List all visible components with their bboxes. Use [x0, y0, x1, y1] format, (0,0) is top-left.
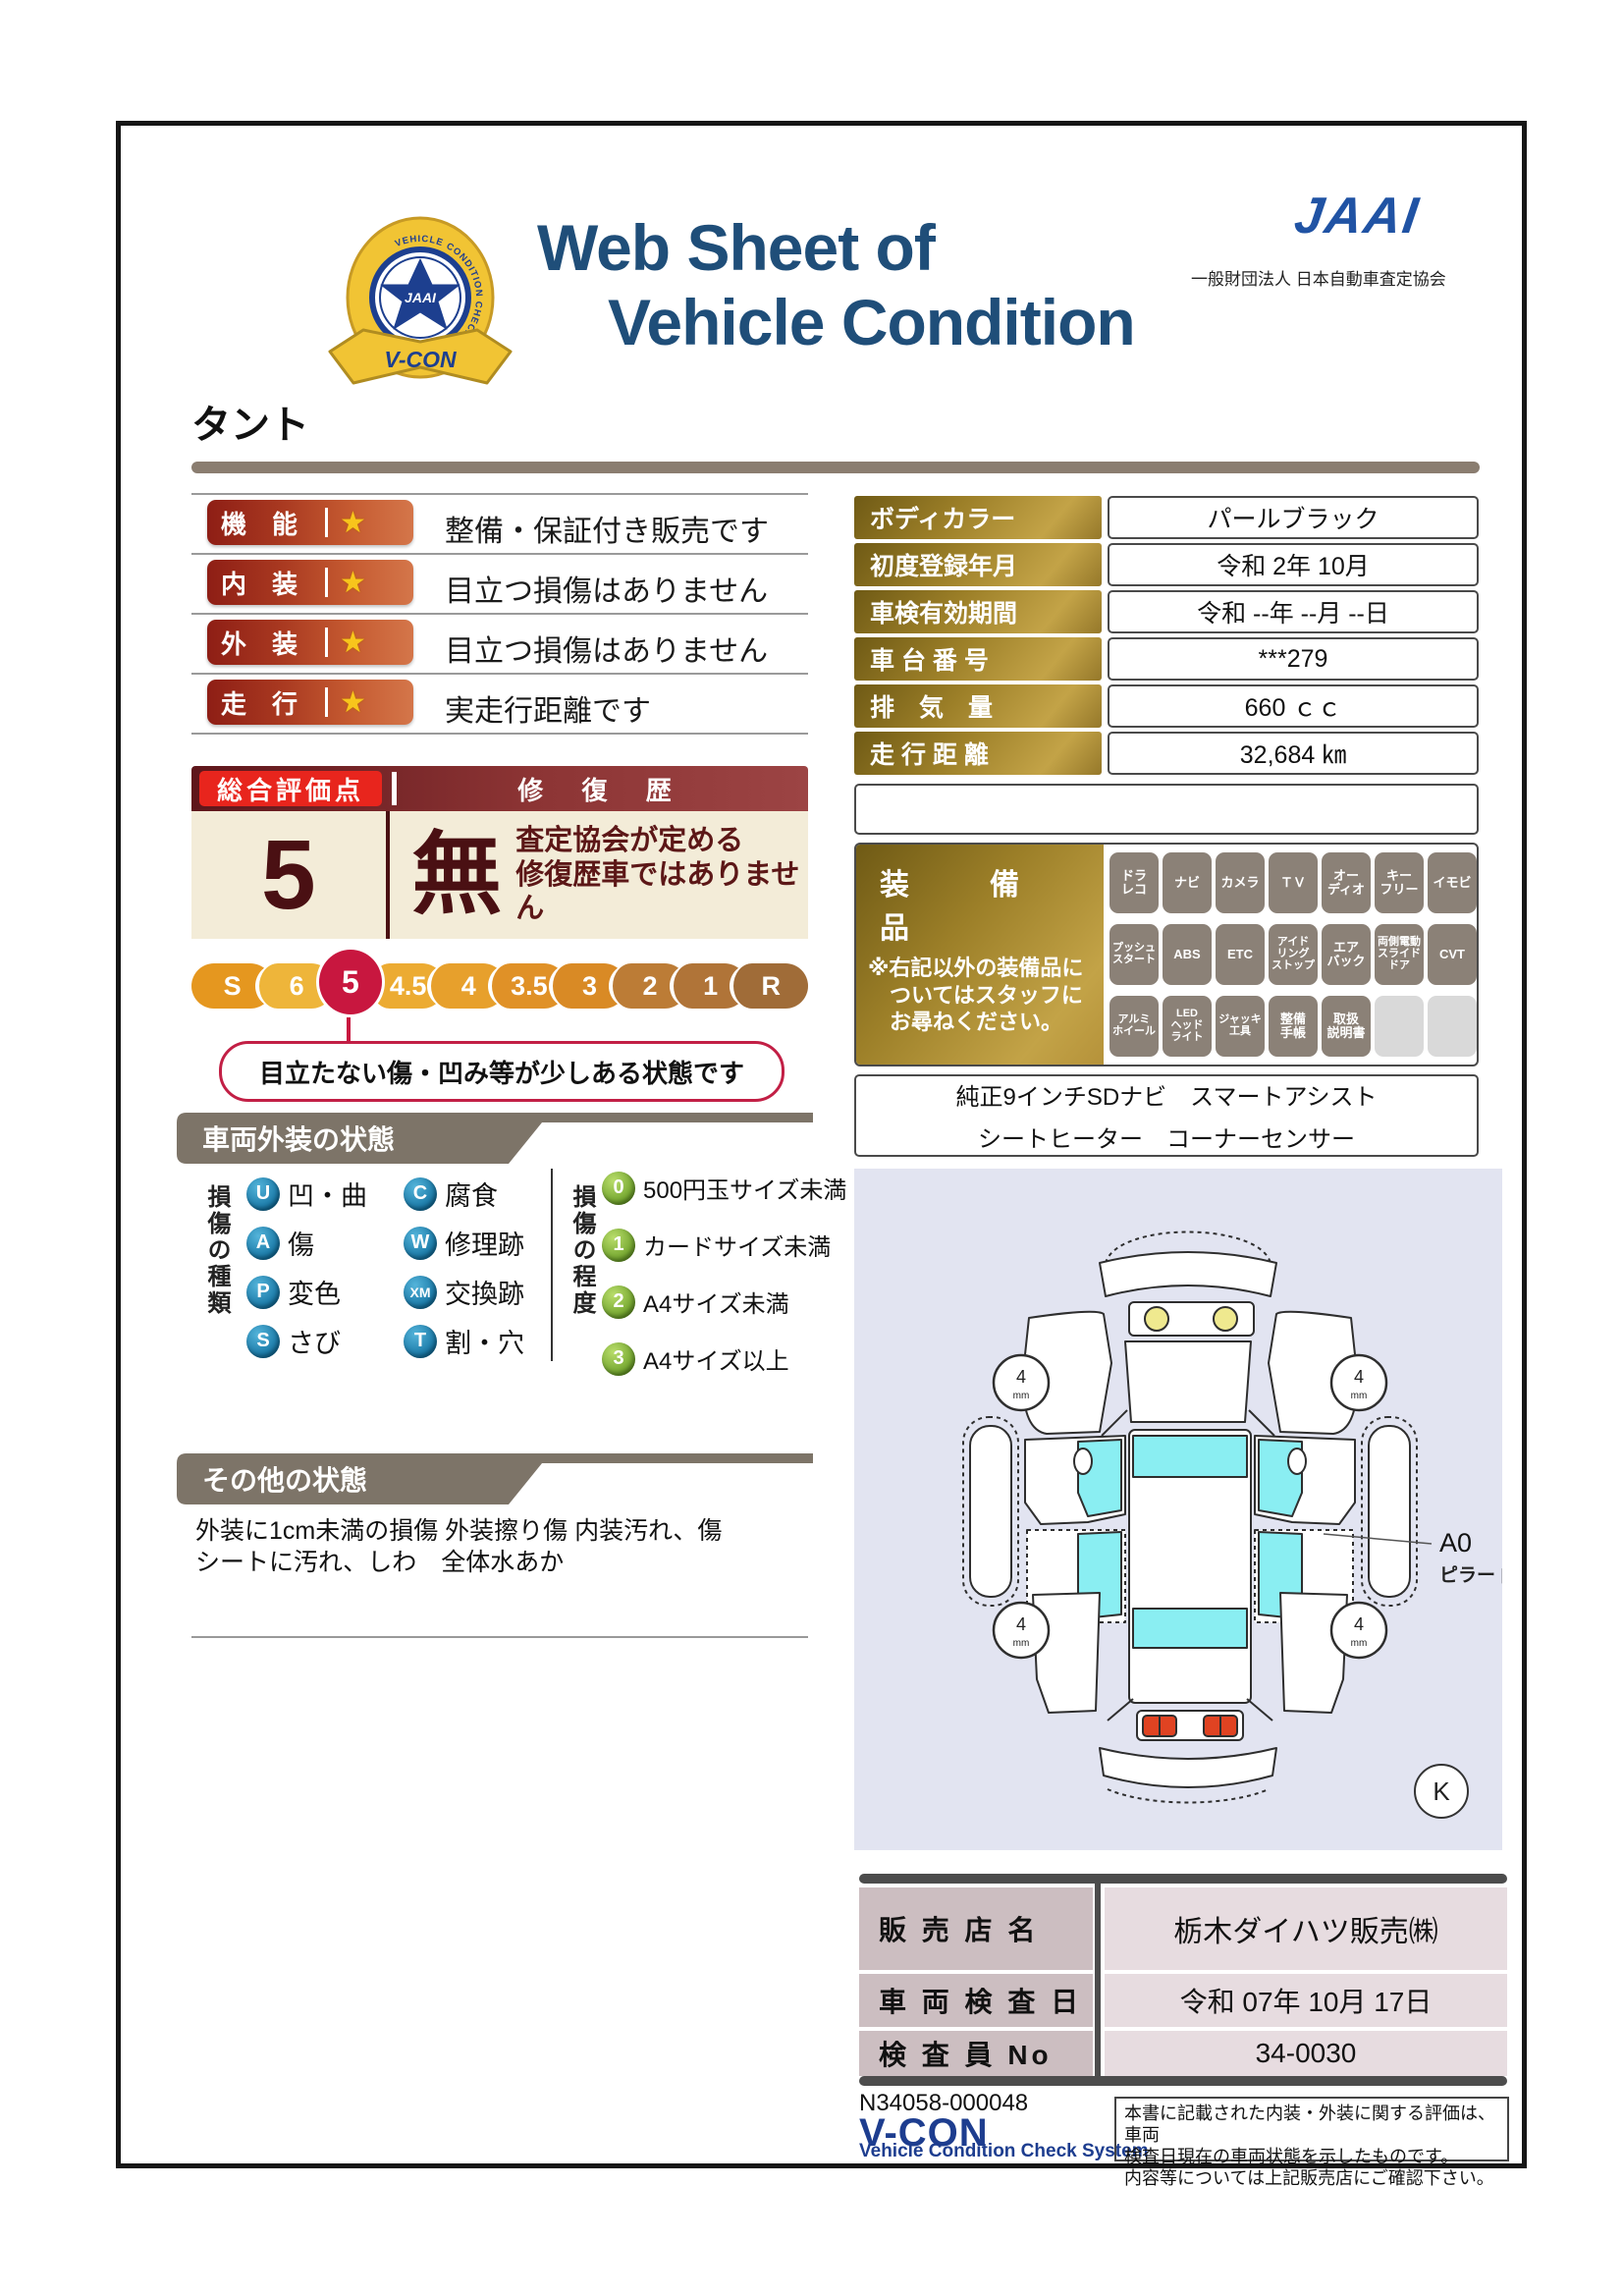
equip-badge-alloy-wheels: アルミ ホイール — [1109, 996, 1159, 1057]
equip-badge-empty — [1375, 996, 1424, 1057]
vcon-emblem-icon: VEHICLE CONDITION CHECK SYSTEM JAAI V-CO… — [322, 214, 518, 401]
damage-degree-item: 3 A4サイズ以上 — [602, 1341, 789, 1376]
rating-separator — [191, 733, 808, 735]
disclaimer-line2: 検査日現在の車両状態を示したものです。 — [1124, 2147, 1499, 2168]
tread-unit: mm — [1013, 1638, 1030, 1649]
dealer-label-inspection-date: 車 両 検 査 日 — [859, 1974, 1093, 2027]
vcon-logo-subtitle: Vehicle Condition Check System — [859, 2141, 1149, 2162]
rating-separator — [191, 613, 808, 615]
table-vertical-divider — [1095, 1884, 1101, 2076]
overall-score-value: 5 — [191, 811, 386, 939]
equip-badge-owners-manual: 取扱 説明書 — [1322, 996, 1371, 1057]
equip-badge-cvt: CVT — [1428, 924, 1477, 985]
other-banner-title: その他の状態 — [202, 1464, 367, 1496]
pill-divider — [325, 687, 328, 717]
damage-type-item: W 修理跡 — [404, 1224, 524, 1262]
table-top-bar — [859, 1874, 1507, 1884]
dealer-label-inspector-no: 検 査 員 No — [859, 2031, 1093, 2076]
tread-unit: mm — [1351, 1638, 1368, 1649]
degree-text: カードサイズ未満 — [643, 1228, 831, 1262]
damage-type-text: 凹・曲 — [288, 1175, 367, 1213]
rating-label: 外 装 — [221, 625, 315, 661]
rating-separator — [191, 673, 808, 675]
table-bottom-bar — [859, 2076, 1507, 2086]
dealer-table: 販 売 店 名 栃木ダイハツ販売㈱ 車 両 検 査 日 令和 07年 10月 1… — [859, 1874, 1507, 2086]
page-frame: VEHICLE CONDITION CHECK SYSTEM JAAI V-CO… — [116, 121, 1527, 2168]
damage-type-item: A 傷 — [246, 1224, 314, 1262]
info-value-chassis-number: ***279 — [1108, 637, 1479, 681]
dealer-value-inspector-no: 34-0030 — [1105, 2031, 1507, 2076]
rating-label: 走 行 — [221, 684, 315, 721]
equip-badge-service-book: 整備 手帳 — [1269, 996, 1318, 1057]
damage-type-item: T 割・穴 — [404, 1322, 524, 1360]
dealer-value-shop: 栃木ダイハツ販売㈱ — [1105, 1887, 1507, 1970]
damage-code-badge: T — [404, 1325, 437, 1358]
damage-type-text: 交換跡 — [445, 1273, 524, 1311]
repair-history-mark: 無 — [411, 830, 502, 920]
dealer-value-inspection-date: 令和 07年 10月 17日 — [1105, 1974, 1507, 2027]
info-value-bodycolor: パールブラック — [1108, 496, 1479, 539]
rating-separator — [191, 493, 808, 495]
rating-description: 目立つ損傷はありません — [445, 567, 768, 610]
damage-degree-label: 損傷の程度 — [565, 1184, 599, 1366]
rating-description: 整備・保証付き販売です — [445, 507, 769, 550]
rating-description: 目立つ損傷はありません — [445, 627, 768, 670]
equip-badge-navi: ナビ — [1163, 852, 1212, 913]
equipment-box: 装 備 品 ※右記以外の装備品に ついてはスタッフに お尋ねください。 ドラ レ… — [854, 843, 1479, 1066]
damage-degree-item: 2 A4サイズ未満 — [602, 1285, 789, 1319]
rating-pill-function: 機 能 ★ — [207, 500, 413, 545]
damage-code-badge: U — [246, 1177, 280, 1211]
info-label-inspection-validity: 車検有効期間 — [854, 590, 1102, 633]
tread-front-right: 4 — [1354, 1367, 1364, 1387]
equipment-notes-line2: シートヒーター コーナーセンサー — [978, 1120, 1355, 1154]
equip-badge-keyfree: キー フリー — [1375, 852, 1424, 913]
overall-score-box: 総合評価点 修 復 歴 5 無 査定協会が定める 修復歴車ではありません — [191, 766, 808, 939]
damage-type-item: U 凹・曲 — [246, 1175, 367, 1213]
equip-badge-camera: カメラ — [1216, 852, 1265, 913]
degree-code-badge: 3 — [602, 1342, 635, 1376]
other-section-underline — [191, 1636, 808, 1638]
degree-code-badge: 0 — [602, 1172, 635, 1205]
other-condition-line2: シートに汚れ、しわ 全体水あか — [195, 1547, 564, 1579]
rating-label: 機 能 — [221, 505, 315, 541]
equip-badge-power-slide-doors: 両側電動 スライド ドア — [1375, 924, 1424, 985]
rating-separator — [191, 553, 808, 555]
damage-degree-item: 0 500円玉サイズ未満 — [602, 1171, 846, 1205]
info-label-first-registration: 初度登録年月 — [854, 543, 1102, 586]
damage-code-badge: XM — [404, 1276, 437, 1309]
degree-text: 500円玉サイズ未満 — [643, 1171, 846, 1205]
vehicle-name: タント — [191, 393, 309, 450]
damage-type-item: C 腐食 — [404, 1175, 498, 1213]
damage-code-badge: A — [246, 1227, 280, 1260]
damage-degree-item: 1 カードサイズ未満 — [602, 1228, 831, 1262]
grade-5-selected: 5 — [316, 947, 385, 1017]
equip-badge-abs: ABS — [1163, 924, 1212, 985]
info-spare-box — [854, 784, 1479, 835]
tread-rear-right: 4 — [1354, 1614, 1364, 1634]
overall-body: 5 無 査定協会が定める 修復歴車ではありません — [191, 811, 808, 939]
equip-badge-immobilizer: イモビ — [1428, 852, 1477, 913]
equip-badge-led-headlights: LED ヘッド ライト — [1163, 996, 1212, 1057]
rating-pill-exterior: 外 装 ★ — [207, 620, 413, 665]
info-value-inspection-validity: 令和 --年 --月 --日 — [1108, 590, 1479, 633]
star-icon: ★ — [340, 506, 366, 540]
equipment-notes-box: 純正9インチSDナビ スマートアシスト シートヒーター コーナーセンサー — [854, 1074, 1479, 1157]
rating-pill-interior: 内 装 ★ — [207, 560, 413, 605]
star-icon: ★ — [340, 626, 366, 660]
info-value-mileage: 32,684 ㎞ — [1108, 732, 1479, 775]
sheet-title-line2: Vehicle Condition — [608, 285, 1135, 359]
degree-code-badge: 1 — [602, 1229, 635, 1262]
annotation-code: A0 — [1439, 1528, 1472, 1558]
diagram-k-mark: K — [1433, 1777, 1450, 1806]
damage-type-item: S さび — [246, 1322, 341, 1360]
equipment-note: ※右記以外の装備品に ついてはスタッフに お尋ねください。 — [868, 955, 1100, 1036]
grade-scale: S 6 5 4.5 4 3.5 3 2 1 R — [191, 962, 808, 1010]
equip-badge-tv: ＴＶ — [1269, 852, 1318, 913]
tread-unit: mm — [1351, 1391, 1368, 1401]
degree-text: A4サイズ未満 — [643, 1285, 789, 1319]
equip-badge-airbag: エア バック — [1322, 924, 1371, 985]
header-divider — [191, 462, 1480, 473]
tread-unit: mm — [1013, 1391, 1030, 1401]
rating-description: 実走行距離です — [445, 686, 651, 730]
overall-header: 総合評価点 修 復 歴 — [191, 766, 808, 811]
jaai-subtitle: 一般財団法人 日本自動車査定協会 — [1191, 265, 1446, 290]
emblem-star-text: JAAI — [405, 290, 437, 305]
equip-badge-idling-stop: アイド リング ストップ — [1269, 924, 1318, 985]
legend-divider — [551, 1169, 553, 1361]
pill-divider — [325, 568, 328, 597]
star-icon: ★ — [340, 685, 366, 720]
damage-type-item: XM 交換跡 — [404, 1273, 524, 1311]
equip-badge-push-start: プッシュ スタート — [1109, 924, 1159, 985]
damage-type-text: さび — [288, 1322, 341, 1360]
equipment-notes-line1: 純正9インチSDナビ スマートアシスト — [955, 1077, 1377, 1112]
equipment-title: 装 備 品 — [880, 860, 1104, 947]
other-banner: その他の状態 — [177, 1453, 813, 1504]
damage-code-badge: W — [404, 1227, 437, 1260]
emblem-ribbon-text: V-CON — [384, 347, 457, 372]
equip-badge-audio: オー ディオ — [1322, 852, 1371, 913]
dealer-label-shop: 販 売 店 名 — [859, 1887, 1093, 1970]
annotation-label: ピラー 内側 — [1439, 1563, 1502, 1586]
grade-r: R — [730, 963, 808, 1009]
equipment-gold-panel: 装 備 品 ※右記以外の装備品に ついてはスタッフに お尋ねください。 — [856, 845, 1104, 1065]
equip-badge-empty — [1428, 996, 1477, 1057]
callout-stem — [347, 1017, 351, 1043]
repair-history-title: 修 復 歴 — [397, 771, 808, 807]
equip-badge-drive-recorder: ドラ レコ — [1109, 852, 1159, 913]
info-label-displacement: 排 気 量 — [854, 684, 1102, 728]
tread-rear-left: 4 — [1016, 1614, 1026, 1634]
damage-type-text: 腐食 — [445, 1175, 498, 1213]
equip-badge-etc: ETC — [1216, 924, 1265, 985]
damage-type-text: 修理跡 — [445, 1224, 524, 1262]
pill-divider — [325, 628, 328, 657]
rating-label: 内 装 — [221, 565, 315, 601]
info-label-mileage: 走 行 距 離 — [854, 732, 1102, 775]
repair-note-line2: 修復歴車ではありません — [515, 858, 808, 927]
car-diagram: 4 mm 4 mm 4 mm 4 mm A0 ピラー 内側 K — [854, 1169, 1502, 1850]
disclaimer-line3: 内容等については上記販売店にご確認下さい。 — [1124, 2168, 1499, 2190]
damage-code-badge: C — [404, 1177, 437, 1211]
info-label-bodycolor: ボディカラー — [854, 496, 1102, 539]
info-value-displacement: 660 ｃｃ — [1108, 684, 1479, 728]
damage-code-badge: P — [246, 1276, 280, 1309]
info-label-chassis-number: 車 台 番 号 — [854, 637, 1102, 681]
disclaimer-box: 本書に記載された内装・外装に関する評価は、車両 検査日現在の車両状態を示したもの… — [1114, 2097, 1509, 2161]
vehicle-condition-sheet: VEHICLE CONDITION CHECK SYSTEM JAAI V-CO… — [0, 0, 1623, 2296]
damage-type-text: 割・穴 — [445, 1322, 524, 1360]
damage-code-badge: S — [246, 1325, 280, 1358]
disclaimer-line1: 本書に記載された内装・外装に関する評価は、車両 — [1124, 2104, 1499, 2147]
degree-text: A4サイズ以上 — [643, 1341, 789, 1376]
other-condition-line1: 外装に1cm未満の損傷 外装擦り傷 内装汚れ、傷 — [195, 1515, 722, 1548]
info-value-first-registration: 令和 2年 10月 — [1108, 543, 1479, 586]
star-icon: ★ — [340, 566, 366, 600]
overall-score-title: 総合評価点 — [199, 771, 382, 806]
exterior-banner: 車両外装の状態 — [177, 1113, 813, 1164]
damage-type-item: P 変色 — [246, 1273, 341, 1311]
damage-type-text: 傷 — [288, 1224, 314, 1262]
sheet-title-line1: Web Sheet of — [537, 210, 935, 285]
damage-type-text: 変色 — [288, 1273, 341, 1311]
equip-badge-jack-tools: ジャッキ 工具 — [1216, 996, 1265, 1057]
tread-front-left: 4 — [1016, 1367, 1026, 1387]
exterior-banner-title: 車両外装の状態 — [202, 1123, 395, 1155]
degree-code-badge: 2 — [602, 1285, 635, 1319]
jaai-logo: JAAI — [1291, 187, 1424, 246]
repair-note-line1: 査定協会が定める — [515, 824, 808, 858]
damage-type-label: 損傷の種類 — [199, 1184, 234, 1366]
pill-divider — [325, 508, 328, 537]
rating-pill-mileage: 走 行 ★ — [207, 680, 413, 725]
grade-callout: 目立たない傷・凹み等が少しある状態です — [219, 1041, 784, 1102]
